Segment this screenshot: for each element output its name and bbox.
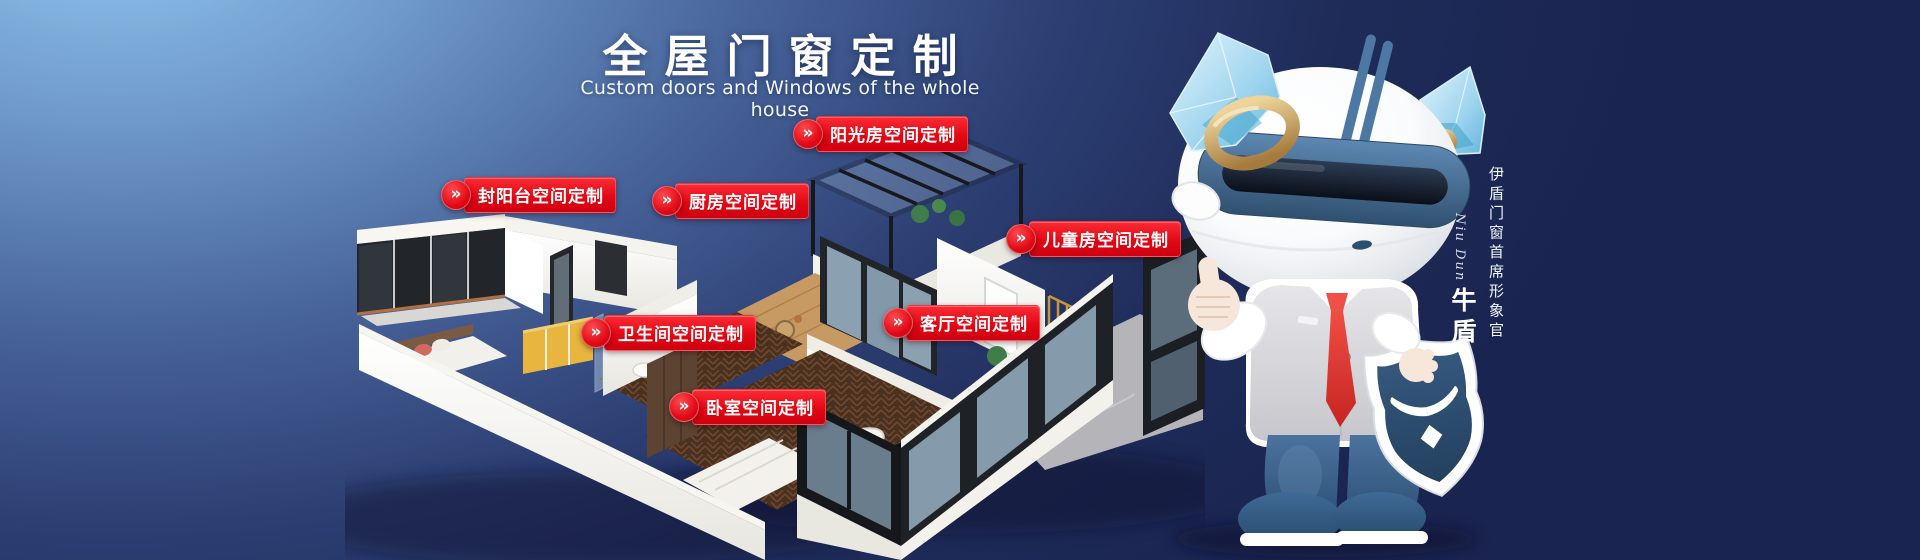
hero-banner: 全屋门窗定制 Custom doors and Windows of the w…	[0, 0, 1920, 560]
room-label-text: 阳光房空间定制	[816, 116, 968, 152]
room-label-text: 客厅空间定制	[906, 305, 1040, 341]
double-chevron-icon: »	[441, 180, 471, 210]
double-chevron-icon: »	[581, 318, 611, 348]
double-chevron-icon: »	[669, 392, 699, 422]
mascot-name: 牛盾	[1444, 287, 1480, 349]
double-chevron-icon: »	[1006, 224, 1036, 254]
room-label-text: 卫生间空间定制	[604, 315, 756, 351]
double-chevron-icon: »	[883, 308, 913, 338]
banner-title: 全屋门窗定制	[568, 20, 992, 85]
double-chevron-icon: »	[793, 119, 823, 149]
room-label-sunroom[interactable]: » 阳光房空间定制	[793, 116, 968, 152]
mascot-role-caption: 伊盾门窗首席形象官	[1486, 166, 1507, 342]
room-label-enclosed-balcony[interactable]: » 封阳台空间定制	[441, 177, 616, 213]
room-label-text: 卧室空间定制	[692, 389, 826, 425]
mascot-illustration	[1140, 5, 1515, 560]
room-label-text: 封阳台空间定制	[464, 177, 616, 213]
room-label-bedroom[interactable]: » 卧室空间定制	[669, 389, 826, 425]
room-label-kitchen[interactable]: » 厨房空间定制	[652, 183, 809, 219]
room-label-text: 厨房空间定制	[675, 183, 809, 219]
room-label-living-room[interactable]: » 客厅空间定制	[883, 305, 1040, 341]
room-label-text: 儿童房空间定制	[1029, 221, 1181, 257]
room-label-children-room[interactable]: » 儿童房空间定制	[1006, 221, 1181, 257]
mascot-name-script: Niu Dun	[1452, 213, 1467, 282]
banner-subtitle: Custom doors and Windows of the whole ho…	[568, 77, 992, 121]
room-label-bathroom[interactable]: » 卫生间空间定制	[581, 315, 756, 351]
double-chevron-icon: »	[652, 186, 682, 216]
